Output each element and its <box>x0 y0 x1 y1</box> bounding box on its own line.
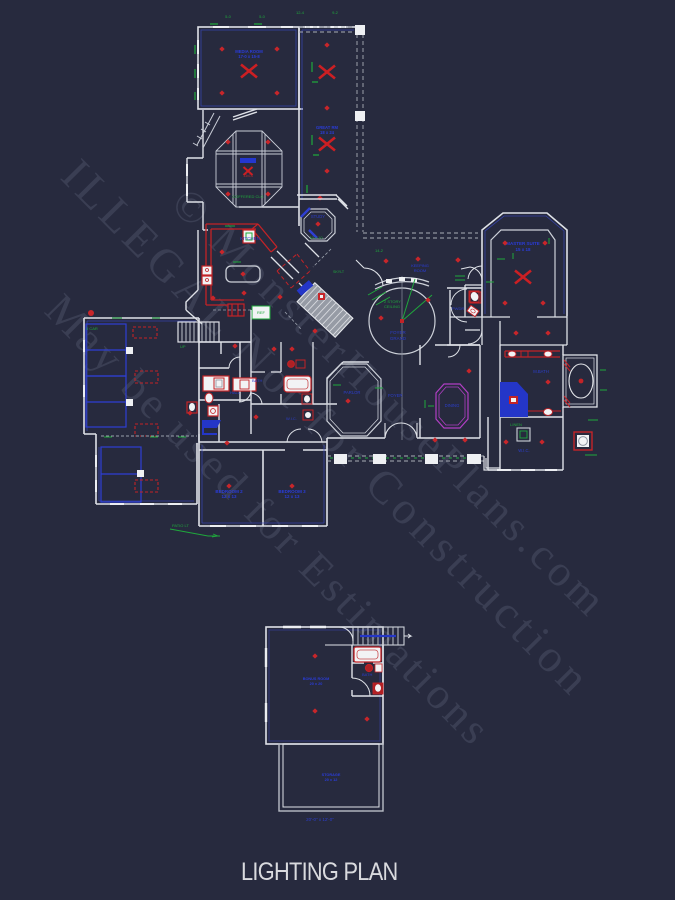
svg-text:COFFERED CLG: COFFERED CLG <box>232 194 263 199</box>
svg-text:18 x 24: 18 x 24 <box>320 130 335 135</box>
svg-text:15 x 18: 15 x 18 <box>515 247 531 252</box>
svg-text:W.I.C.: W.I.C. <box>518 448 529 453</box>
svg-text:M.BATH: M.BATH <box>533 369 549 374</box>
svg-text:5-0: 5-0 <box>259 14 266 19</box>
svg-text:SKYLT: SKYLT <box>333 270 345 274</box>
svg-text:REF: REF <box>257 310 266 315</box>
svg-text:STORAGE: STORAGE <box>322 773 341 777</box>
svg-text:HALL: HALL <box>230 390 241 395</box>
svg-text:PATIO LT: PATIO LT <box>172 523 189 528</box>
svg-text:9-2: 9-2 <box>332 10 339 15</box>
svg-text:5-0: 5-0 <box>225 14 232 19</box>
svg-text:13x14: 13x14 <box>243 174 253 178</box>
svg-text:12 x 13: 12 x 13 <box>221 494 237 499</box>
svg-text:LINEN: LINEN <box>510 422 522 427</box>
svg-text:STUDY: STUDY <box>311 214 325 219</box>
svg-text:17-0 x 15-8: 17-0 x 15-8 <box>238 54 260 59</box>
svg-text:MASTER SUITE: MASTER SUITE <box>506 241 540 246</box>
svg-text:ROOM: ROOM <box>414 268 426 273</box>
svg-text:12 x 13: 12 x 13 <box>284 494 300 499</box>
svg-text:FOYER: FOYER <box>390 330 406 335</box>
svg-text:BONUS ROOM: BONUS ROOM <box>303 677 330 681</box>
svg-text:PARLOR: PARLOR <box>344 390 361 395</box>
svg-text:12-4: 12-4 <box>296 10 305 15</box>
svg-text:10 x 10: 10 x 10 <box>309 235 323 240</box>
svg-text:20'-0" x 12'-0": 20'-0" x 12'-0" <box>306 817 334 822</box>
svg-text:PWDR: PWDR <box>452 306 464 311</box>
svg-text:KITCHEN: KITCHEN <box>240 236 260 241</box>
svg-text:UP: UP <box>180 344 186 349</box>
svg-text:CEILING: CEILING <box>384 304 400 309</box>
svg-text:20 x 20: 20 x 20 <box>310 682 323 686</box>
svg-text:© MonsterHousePlans.com: © MonsterHousePlans.com <box>162 178 618 627</box>
svg-text:BATH: BATH <box>362 672 372 677</box>
svg-text:3 CAR: 3 CAR <box>86 326 98 331</box>
svg-text:20 x 12: 20 x 12 <box>325 778 338 782</box>
svg-text:GRAND: GRAND <box>390 336 407 341</box>
svg-text:14-2: 14-2 <box>375 248 384 253</box>
svg-text:DINING: DINING <box>445 403 460 408</box>
svg-text:W.I.C.: W.I.C. <box>286 416 297 421</box>
svg-text:BATH: BATH <box>252 378 262 383</box>
svg-text:FOYER: FOYER <box>388 393 402 398</box>
